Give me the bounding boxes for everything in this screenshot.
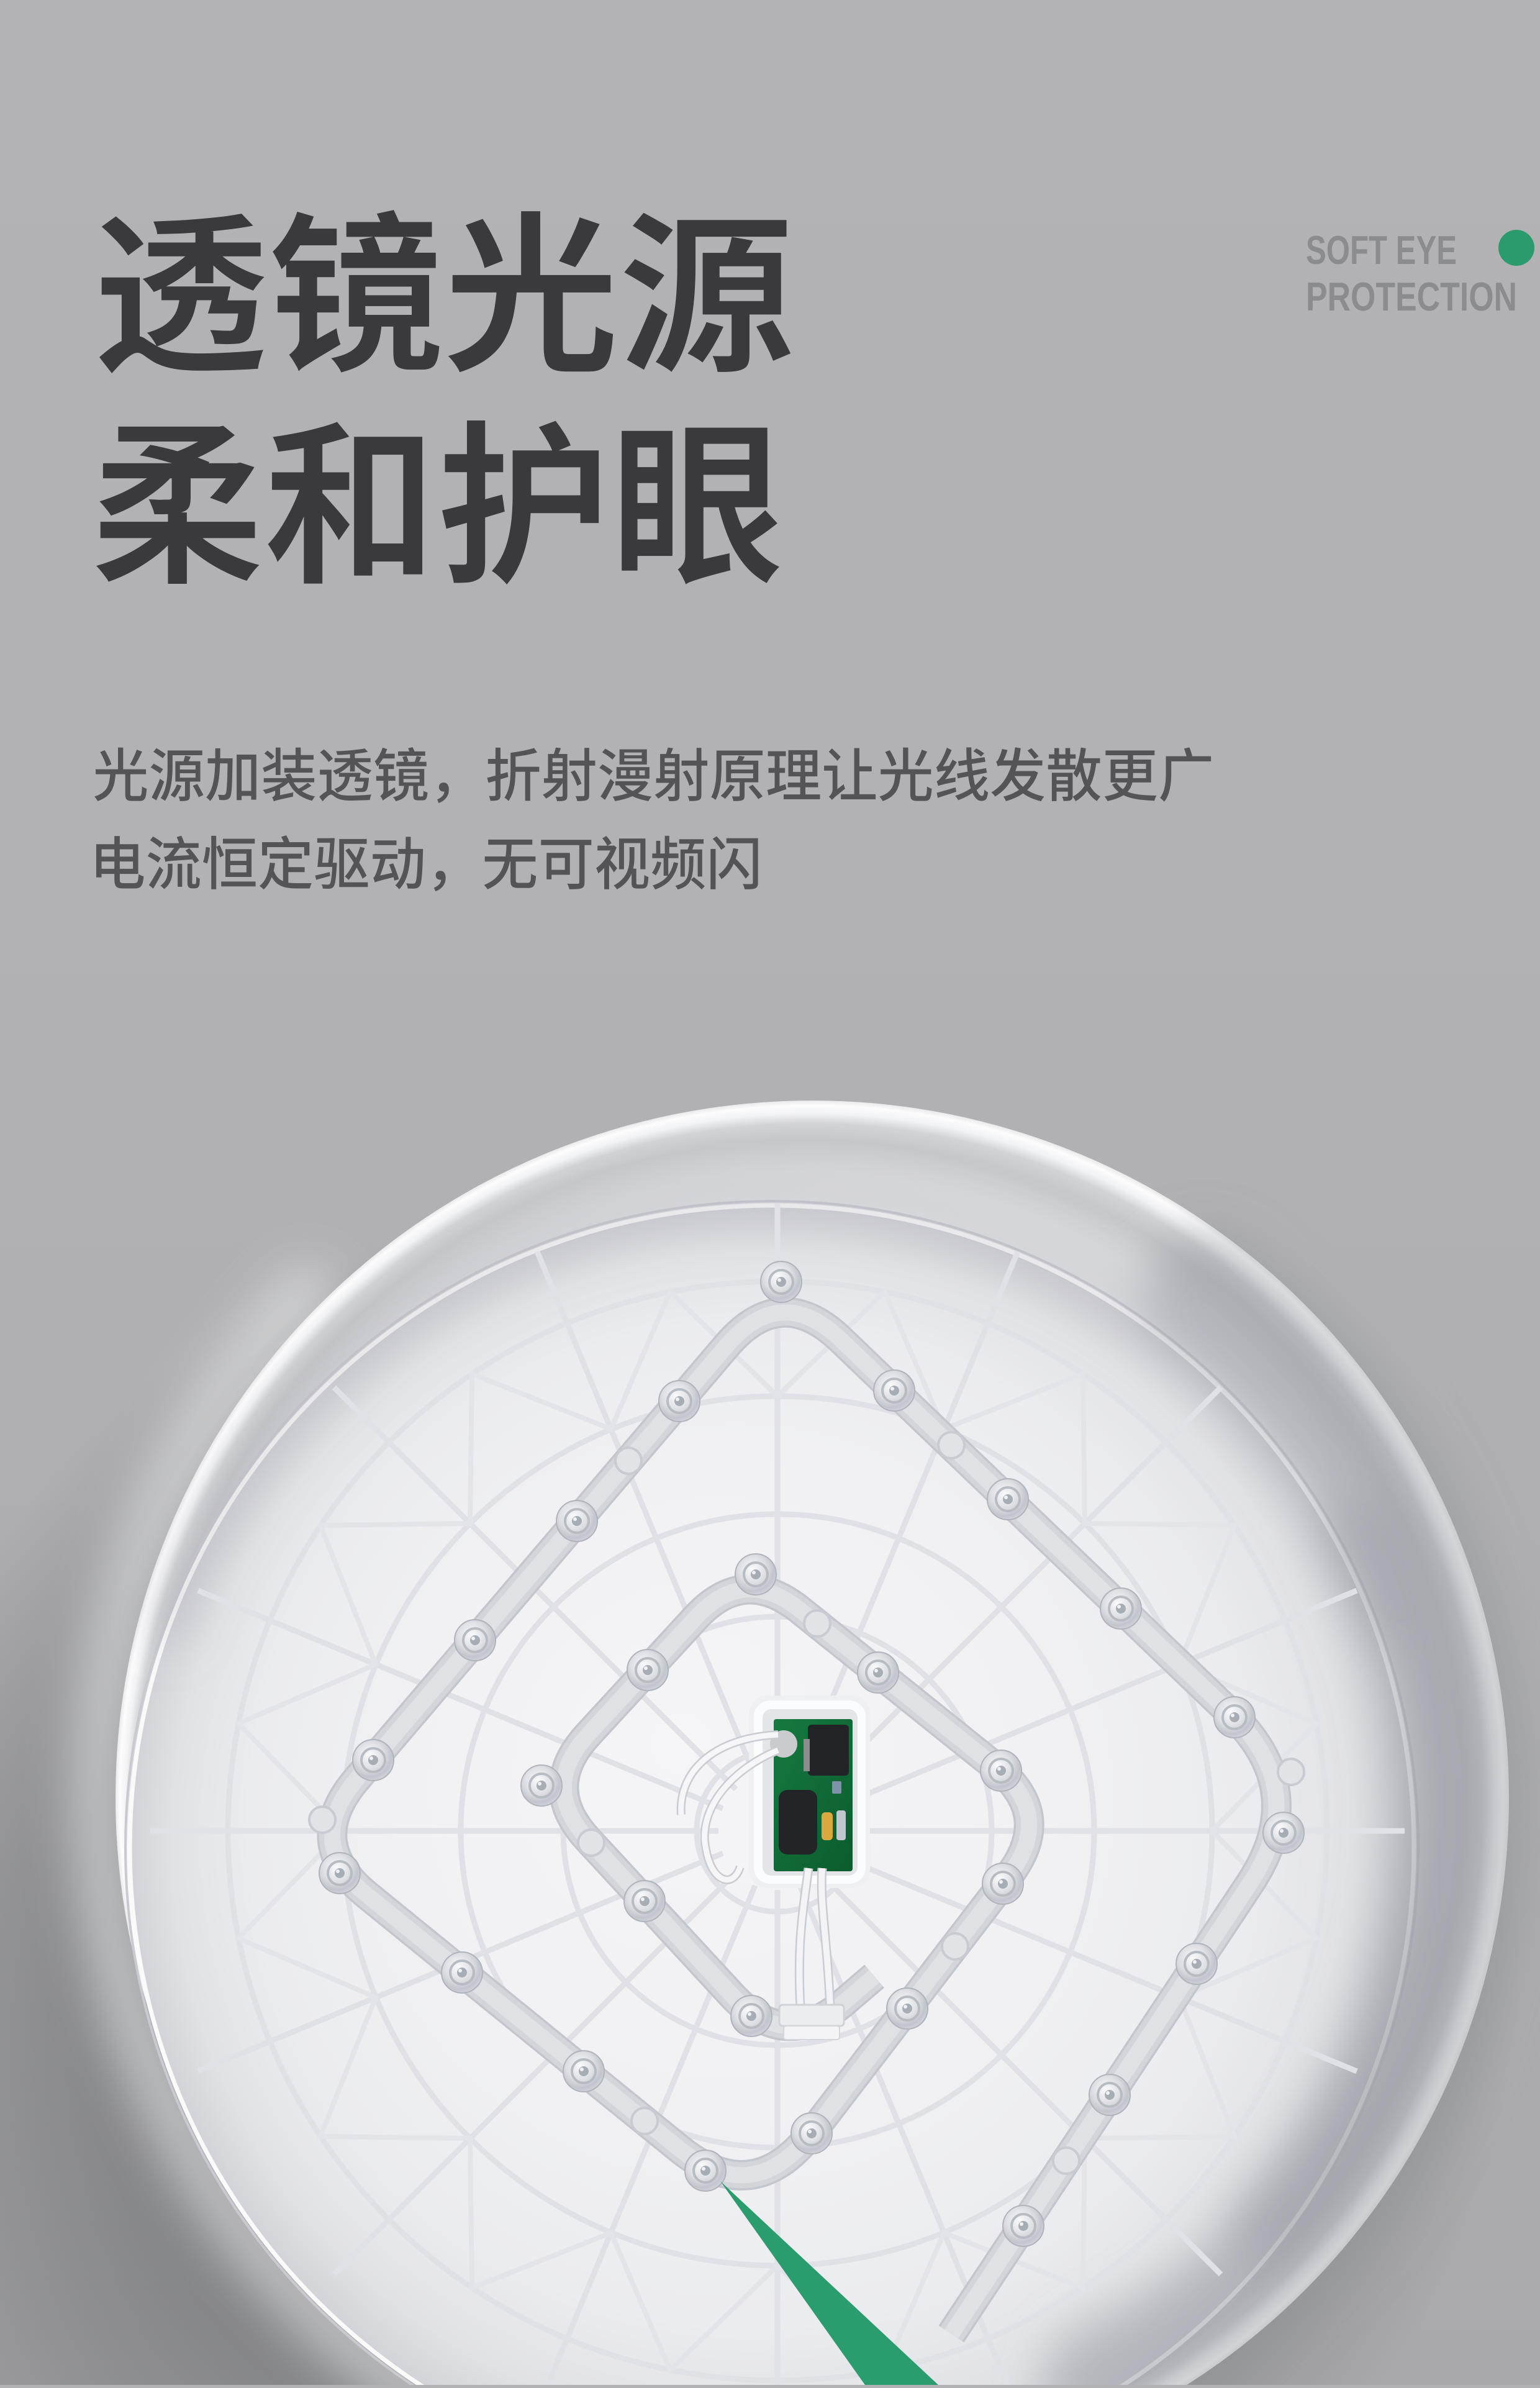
svg-text:PROTECTION: PROTECTION	[1306, 274, 1517, 319]
svg-text:SOFT EYE: SOFT EYE	[1306, 227, 1457, 273]
